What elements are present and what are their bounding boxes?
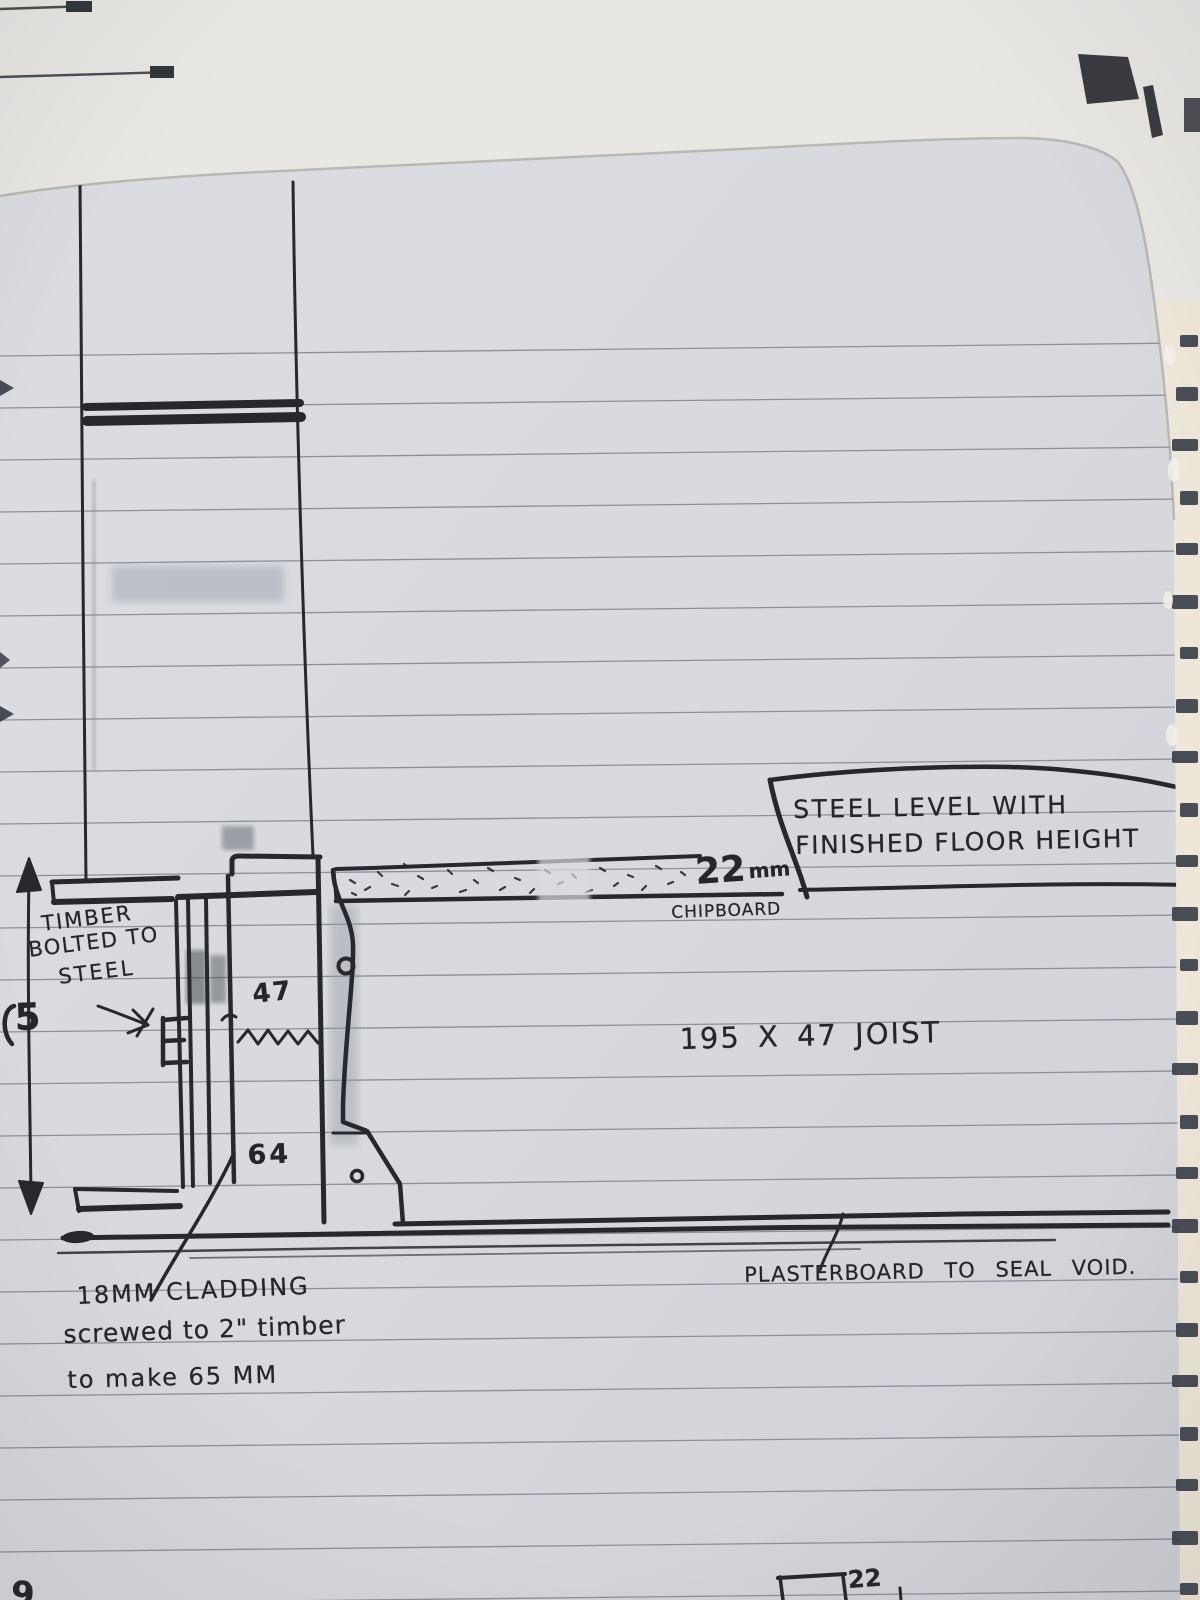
chipboard-word: CHIPBOARD xyxy=(671,899,782,923)
chipboard-unit: mm xyxy=(748,856,791,883)
cladding-note-line3: to make 65 MM xyxy=(67,1360,278,1394)
callout-text-line1: STEEL LEVEL WITH xyxy=(793,790,1069,824)
photo-of-hand-drawn-construction-sketch: { "colors": { "ink": "#26282d", "paper":… xyxy=(0,0,1200,1600)
chipboard-thickness: 22mm xyxy=(694,846,788,893)
left-dimension-partial: 5 xyxy=(14,995,41,1039)
dim-64-label: 64 xyxy=(247,1138,292,1171)
bottom-left-partial-glyph: 9 xyxy=(10,1574,36,1600)
chipboard-size: 22 xyxy=(694,849,747,893)
dim-47-label: 47 xyxy=(251,976,294,1010)
bottom-dimension-partial: 22 xyxy=(847,1564,882,1594)
joist-label: 195 X 47 JOIST xyxy=(679,1015,942,1056)
